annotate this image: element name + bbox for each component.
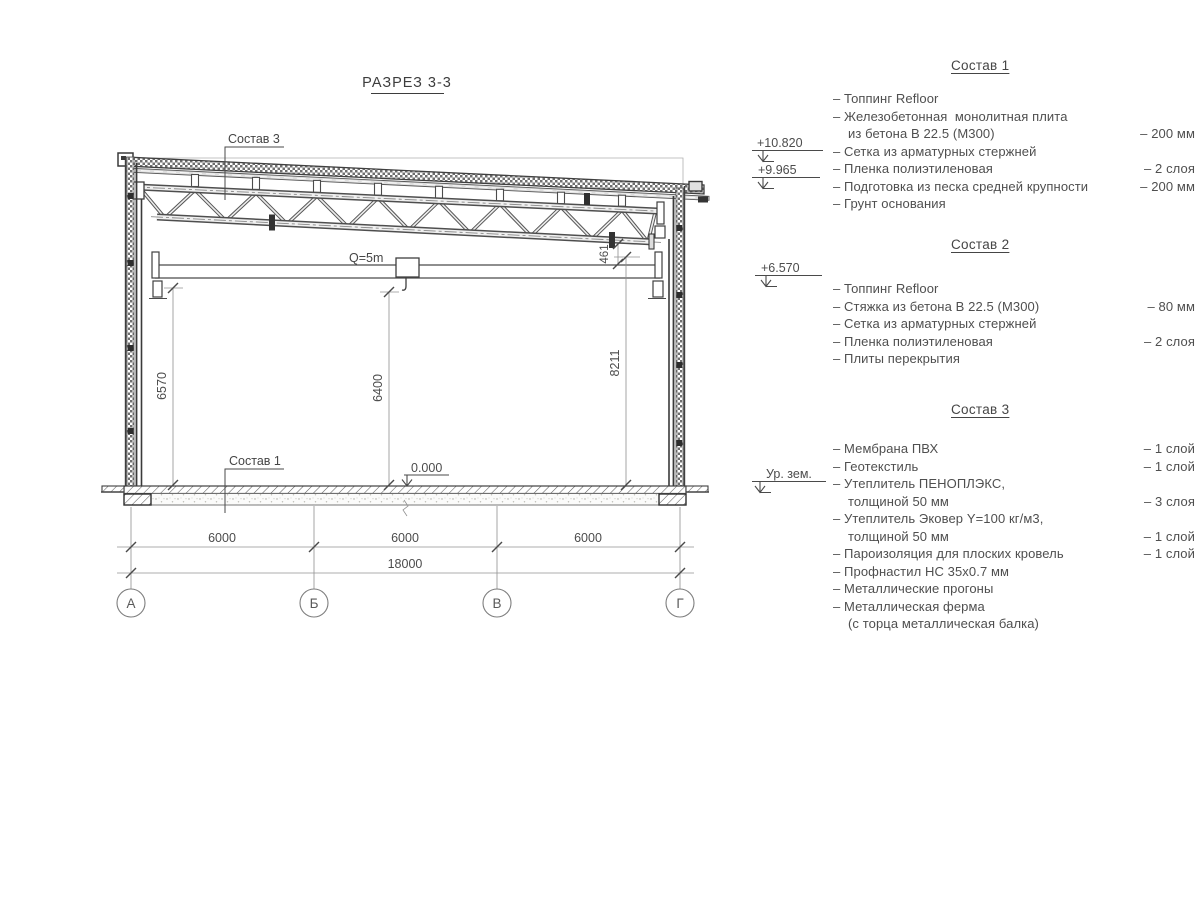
spec-item: – Геотекстиль – 1 слой (833, 458, 1195, 476)
sostav1-leader-label: Состав 1 (229, 454, 281, 468)
spec-item: – Профнастил НС 35х0.7 мм (833, 563, 1195, 581)
spec-heading-1: Состав 1 (951, 58, 1009, 73)
drawing-title: РАЗРЕЗ 3-3 (362, 75, 452, 94)
spec-items-2: – Топпинг Refloor – Стяжка из бетона В 2… (833, 280, 1195, 368)
spec-item: – Утеплитель ПЕНОПЛЭКС, (833, 475, 1195, 493)
spec-block-sostav-2: Состав 2 – Топпинг Refloor – Стяжка из б… (833, 236, 1195, 368)
axis-label-b: Б (310, 596, 319, 611)
footing-right (659, 494, 686, 505)
spec-item: – Металлическая ферма (833, 598, 1195, 616)
spec-item: – Топпинг Refloor (833, 280, 1195, 298)
spec-item: – Топпинг Refloor (833, 90, 1195, 108)
spec-item: – Пленка полиэтиленовая – 2 слоя (833, 333, 1195, 351)
sostav3-leader-label: Состав 3 (228, 132, 280, 146)
spec-item: – Грунт основания (833, 195, 1195, 213)
spec-item: – Металлические прогоны (833, 580, 1195, 598)
spec-item: – Стяжка из бетона В 22.5 (М300) – 80 мм (833, 298, 1195, 316)
spec-items-1: – Топпинг Refloor – Железобетонная монол… (833, 90, 1195, 213)
right-wall (669, 186, 685, 494)
crane-beam: Q=5m (149, 251, 666, 299)
top-chord-splice-mark (584, 193, 590, 205)
spec-item: – Пленка полиэтиленовая – 2 слоя (833, 160, 1195, 178)
footing-left (124, 494, 151, 505)
bottom-chord-splice-mark (269, 215, 275, 231)
roof-overhang-end-block (698, 197, 708, 203)
dim-hook-height: 6400 (371, 374, 385, 402)
crane-bracket-left (152, 252, 159, 278)
floor-slab (101, 486, 709, 516)
roof-right-end-cap (689, 182, 702, 192)
spec-item: толщиной 50 мм – 3 слоя (833, 493, 1195, 511)
spec-block-sostav-1: Состав 1 – Топпинг Refloor – Железобетон… (833, 57, 1195, 213)
sand-bed-layer (124, 494, 686, 506)
spec-item: – Железобетонная монолитная плита (833, 108, 1195, 126)
spec-item: – Сетка из арматурных стержней (833, 143, 1195, 161)
dim-span-1: 6000 (208, 531, 236, 545)
axis-label-v: В (492, 596, 501, 611)
spec-item: – Плиты перекрытия (833, 350, 1195, 368)
dim-clear-height-left: 6570 (155, 372, 169, 400)
spec-heading-2: Состав 2 (951, 237, 1009, 252)
spec-block-sostav-3: Состав 3 – Мембрана ПВХ – 1 слой – Геоте… (833, 401, 1195, 633)
dim-span-2: 6000 (391, 531, 419, 545)
spec-item: – Пароизоляция для плоских кровель – 1 с… (833, 545, 1195, 563)
dim-truss-bottom-height: 8211 (608, 350, 622, 377)
horizontal-dimensions: 6000 6000 6000 18000 (117, 506, 694, 589)
spec-item: – Мембрана ПВХ – 1 слой (833, 440, 1195, 458)
crane-capacity-label: Q=5m (349, 251, 383, 265)
spec-heading-3: Состав 3 (951, 402, 1009, 417)
dim-truss-to-rail: 461 (599, 244, 611, 263)
elevation-roof-high: +10.820 (757, 136, 803, 150)
spec-item: (с торца металлическая балка) (833, 615, 1195, 633)
zero-level-label: 0.000 (411, 461, 442, 475)
spec-item: – Подготовка из песка средней крупности … (833, 178, 1195, 196)
elevation-crane-rail: +6.570 (761, 261, 800, 275)
elevation-roof-low: +9.965 (758, 163, 797, 177)
crane-hook (402, 277, 406, 290)
axis-label-g: Г (676, 596, 684, 611)
spec-item: – Сетка из арматурных стержней (833, 315, 1195, 333)
spec-item: из бетона В 22.5 (М300) – 200 мм (833, 125, 1195, 143)
ground-ledge-right (686, 486, 708, 492)
elevation-ground-level: Ур. зем. (766, 467, 812, 481)
axis-label-a: А (126, 596, 135, 611)
dim-total: 18000 (388, 557, 423, 571)
crane-trolley (396, 258, 419, 277)
column-axes: А Б В Г (117, 589, 694, 617)
spec-items-3: – Мембрана ПВХ – 1 слой – Геотекстиль – … (833, 440, 1195, 633)
spec-item: – Утеплитель Эковер Y=100 кг/м3, (833, 510, 1195, 528)
floor-topping-layer (124, 486, 686, 494)
section-title: РАЗРЕЗ 3-3 (362, 75, 452, 91)
dim-span-3: 6000 (574, 531, 602, 545)
truss-seat-right (657, 202, 664, 224)
crane-bracket-right (655, 252, 662, 278)
ground-ledge-left (102, 486, 124, 492)
bottom-chord-end-plate (649, 234, 654, 249)
left-wall (126, 157, 142, 494)
spec-item: толщиной 50 мм – 1 слой (833, 528, 1195, 546)
